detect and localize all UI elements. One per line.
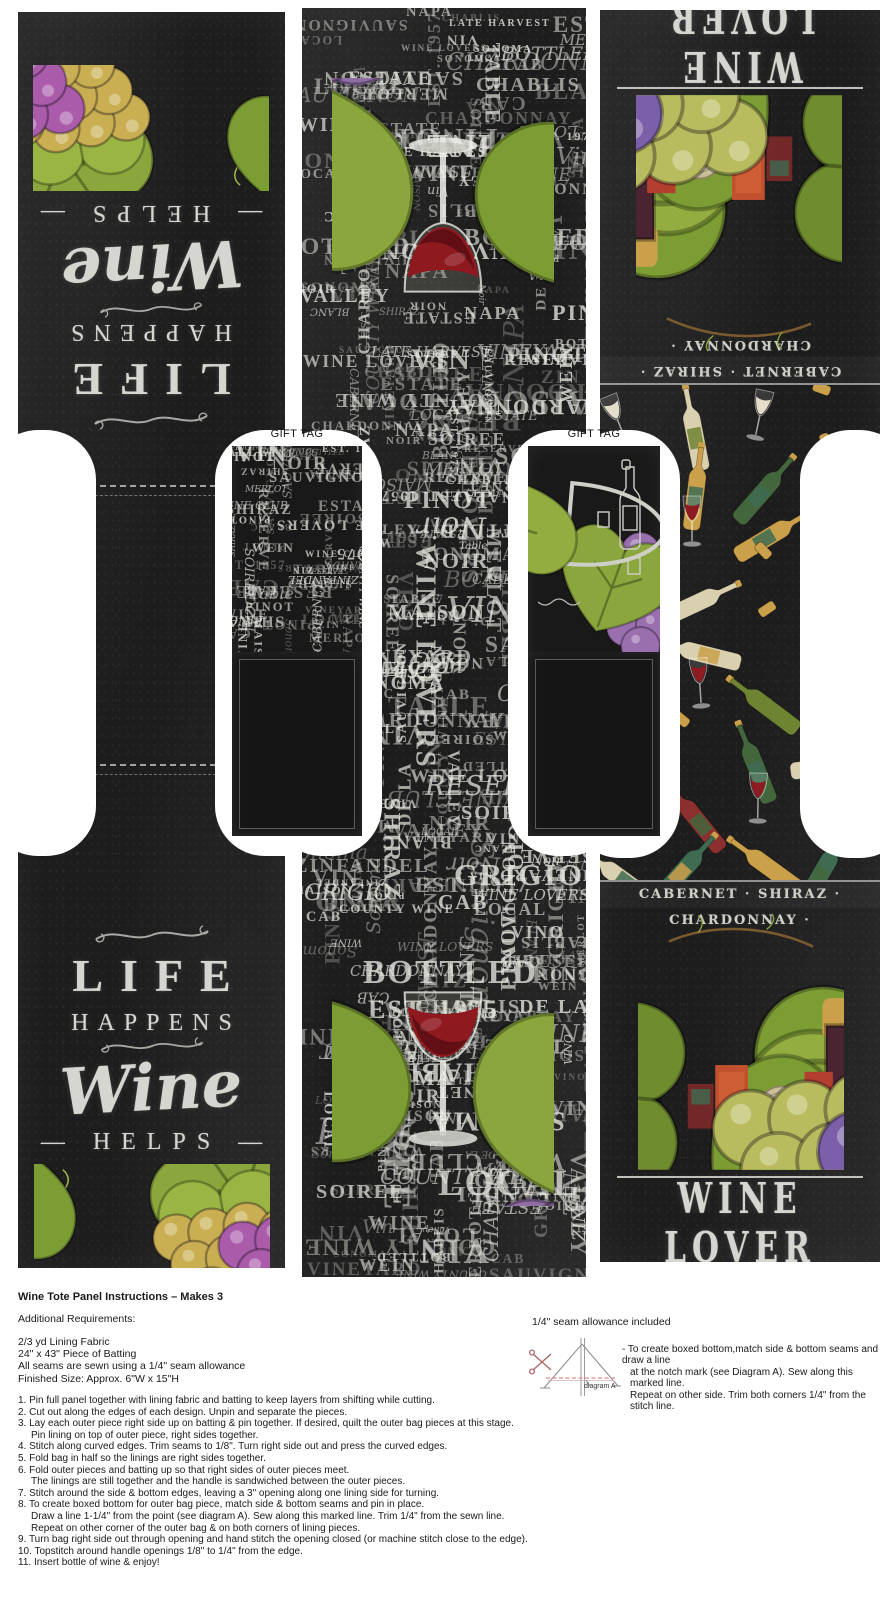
flourish-icon (92, 925, 212, 945)
varieties-band: CABERNET · SHIRAZ · CHARDONNAY · (600, 357, 880, 385)
quote-wine: Wine (59, 1052, 244, 1125)
quote-life: LIFE (55, 353, 247, 406)
chalk-wine-sketches-illustration (528, 446, 660, 652)
seam-allowance-note: 1/4" seam allowance included (532, 1316, 671, 1328)
handle-chalk-stripe (90, 764, 216, 768)
handle-cutout-right (800, 430, 880, 858)
instruction-steps: 1. Pin full panel together with lining f… (18, 1395, 618, 1569)
handle-chalk-stripe (90, 485, 216, 489)
grape-cluster-row-illustration (34, 65, 270, 191)
chalk-frame (239, 659, 355, 829)
diagram-a-label: diagram A (584, 1383, 616, 1390)
quote-wine: Wine (59, 229, 244, 302)
gift-tag-label-right: GIFT TAG (528, 428, 660, 440)
quote-life: LIFE (55, 949, 247, 1002)
wine-lover-headline: WINE LOVER (617, 10, 863, 89)
wine-lover-headline: WINE LOVER (617, 1176, 863, 1262)
boxed-bottom-note: - To create boxed bottom,match side & bo… (622, 1344, 882, 1412)
chalkboard-writing-area (232, 652, 362, 836)
wine-bottles-grapes-illustration (638, 912, 844, 1170)
chalk-frame (535, 659, 653, 829)
wine-bottles-grapes-illustration (636, 95, 842, 353)
life-happens-wine-block-top: LIFE HAPPENS Wine — HELPS — (18, 12, 285, 484)
headline-text: WINE LOVER (617, 1175, 863, 1262)
quote-happens: HAPPENS (62, 318, 241, 345)
handle-chalk-stripe (90, 495, 216, 498)
gift-tag-label-left: GIFT TAG (232, 428, 362, 440)
chalkboard-writing-area (528, 652, 660, 836)
headline-text: WINE LOVER (617, 10, 863, 90)
gift-tag-left: CABMERLOTZINSauvignonSOIREEPinotSAUVIGNO… (232, 446, 362, 836)
gift-tag-right (528, 446, 660, 836)
wine-glass-grapes-illustration-bottom (332, 944, 554, 1206)
handle-cutout-left (18, 430, 96, 856)
quote-happens: HAPPENS (62, 1010, 241, 1037)
quote-helps: — HELPS — (30, 1129, 273, 1156)
life-happens-wine-block-bottom: LIFE HAPPENS Wine — HELPS — (18, 855, 285, 1268)
wine-lover-block-top: CABERNET · SHIRAZ · CHARDONNAY · WINE LO… (600, 10, 880, 385)
handle-chalk-stripe (90, 774, 216, 777)
flourish-icon (92, 410, 212, 430)
scissors-icon (530, 1350, 551, 1374)
additional-requirements-title: Additional Requirements: (18, 1313, 135, 1325)
quote-helps: — HELPS — (30, 199, 273, 226)
requirements-list: 2/3 yd Lining Fabric24" x 43" Piece of B… (18, 1336, 245, 1385)
wine-tote-panel-sheet: LIFE HAPPENS Wine — HELPS — LIFE HAPPENS… (0, 0, 893, 1600)
wine-lover-block-bottom: CABERNET · SHIRAZ · CHARDONNAY · WINE LO… (600, 880, 880, 1262)
wine-words-pattern: CABMERLOTZINSauvignonSOIREEPinotSAUVIGNO… (232, 446, 362, 652)
instructions-title: Wine Tote Panel Instructions – Makes 3 (18, 1291, 223, 1303)
wine-glass-grapes-illustration-top (332, 78, 554, 340)
varieties-band: CABERNET · SHIRAZ · CHARDONNAY · (600, 880, 880, 908)
grape-cluster-row-illustration (34, 1164, 270, 1268)
